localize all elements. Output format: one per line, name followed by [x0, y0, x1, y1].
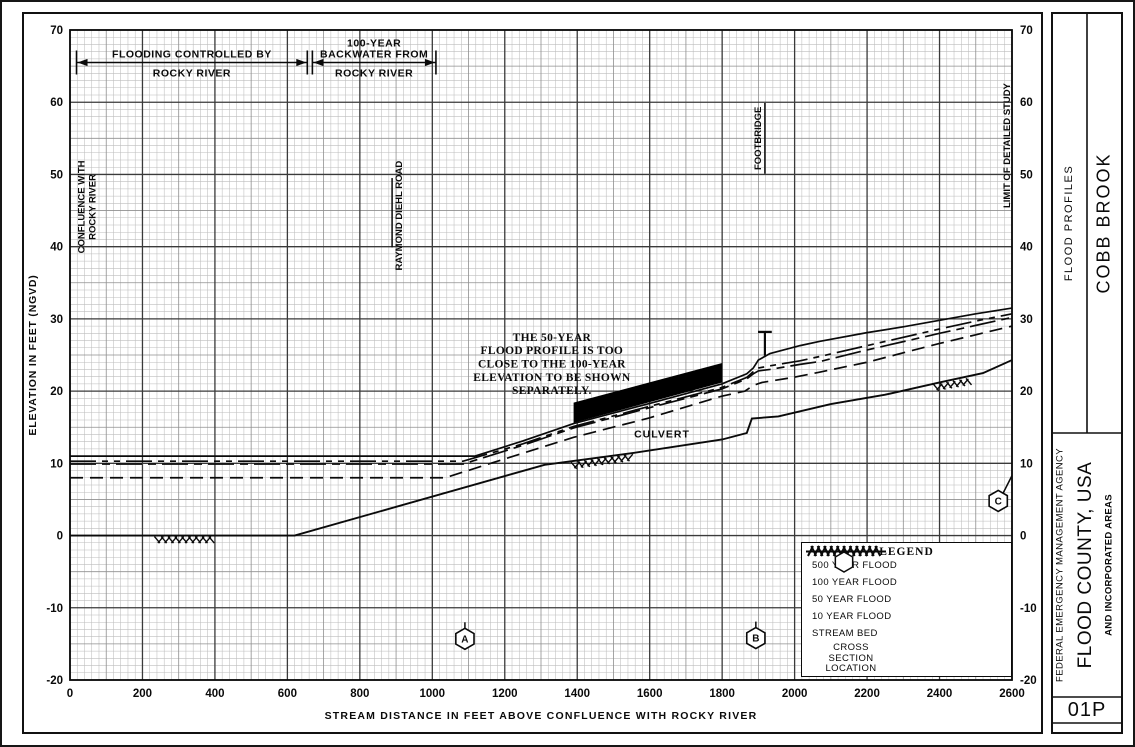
- svg-text:60: 60: [1020, 97, 1033, 109]
- cross-section-C: C: [989, 476, 1012, 512]
- structure-confluence-with-rocky-river: CONFLUENCE WITHROCKY RIVER: [77, 160, 99, 253]
- svg-text:-20: -20: [1020, 675, 1037, 687]
- svg-text:B: B: [752, 634, 759, 645]
- svg-text:10: 10: [50, 458, 63, 470]
- fema-flood-profile-sheet: { "page": { "sidebar_label": "FLOOD PROF…: [0, 0, 1135, 747]
- svg-text:1200: 1200: [492, 688, 518, 700]
- svg-text:2600: 2600: [999, 688, 1025, 700]
- svg-text:-10: -10: [46, 603, 63, 615]
- svg-text:FOOTBRIDGE: FOOTBRIDGE: [753, 107, 764, 170]
- structure-raymond-diehl-road: RAYMOND DIEHL ROAD: [392, 161, 405, 271]
- svg-text:30: 30: [50, 314, 63, 326]
- svg-text:50: 50: [1020, 169, 1033, 181]
- legend-label: 50 YEAR FLOOD: [812, 595, 891, 606]
- svg-text:RAYMOND DIEHL ROAD: RAYMOND DIEHL ROAD: [394, 161, 405, 271]
- cross-section-B: B: [747, 622, 765, 649]
- svg-text:600: 600: [278, 688, 297, 700]
- svg-text:40: 40: [50, 242, 63, 254]
- svg-text:THE 50-YEAR: THE 50-YEAR: [513, 332, 592, 344]
- sidebar-stream-name: COBB BROOK: [1094, 152, 1115, 293]
- panel-number: 01P: [1052, 697, 1122, 723]
- legend-label: STREAM BED: [812, 629, 878, 640]
- svg-text:100-YEAR: 100-YEAR: [347, 38, 401, 50]
- axis-titles: STREAM DISTANCE IN FEET ABOVE CONFLUENCE…: [27, 274, 757, 722]
- svg-text:STREAM DISTANCE IN FEET ABOVE: STREAM DISTANCE IN FEET ABOVE CONFLUENCE…: [325, 710, 758, 722]
- svg-text:BACKWATER FROM: BACKWATER FROM: [320, 49, 428, 61]
- svg-text:2000: 2000: [782, 688, 808, 700]
- legend-row-100-year-flood: 100 YEAR FLOOD: [802, 575, 1011, 592]
- svg-text:ROCKY RIVER: ROCKY RIVER: [335, 68, 413, 80]
- legend-row-stream-bed: STREAM BED: [802, 626, 1011, 643]
- svg-text:20: 20: [1020, 386, 1033, 398]
- svg-text:0: 0: [67, 688, 73, 700]
- sidebar-agency-name: FEDERAL EMERGENCY MANAGEMENT AGENCY: [1055, 448, 1066, 682]
- svg-text:-20: -20: [46, 675, 63, 687]
- sidebar-incorporated-areas: AND INCORPORATED AREAS: [1104, 494, 1115, 636]
- svg-text:ROCKY RIVER: ROCKY RIVER: [88, 174, 99, 240]
- sidebar-flood-profiles-label: FLOOD PROFILES: [1063, 165, 1075, 281]
- legend-row-50-year-flood: 50 YEAR FLOOD: [802, 592, 1011, 609]
- svg-text:200: 200: [133, 688, 152, 700]
- cross-section-symbol-icon: [802, 543, 894, 575]
- svg-text:10: 10: [1020, 458, 1033, 470]
- note-50-year: THE 50-YEARFLOOD PROFILE IS TOOCLOSE TO …: [473, 332, 631, 397]
- cross-section-A: A: [456, 622, 474, 649]
- svg-text:LIMIT OF DETAILED STUDY: LIMIT OF DETAILED STUDY: [1002, 82, 1013, 208]
- svg-text:400: 400: [205, 688, 224, 700]
- svg-text:CULVERT: CULVERT: [634, 428, 690, 440]
- legend: LEGEND 500 YEAR FLOOD100 YEAR FLOOD50 YE…: [801, 542, 1012, 677]
- svg-text:70: 70: [50, 25, 63, 37]
- svg-text:1800: 1800: [709, 688, 735, 700]
- legend-label: 100 YEAR FLOOD: [812, 578, 897, 589]
- svg-text:C: C: [995, 496, 1002, 507]
- svg-text:60: 60: [50, 97, 63, 109]
- svg-text:0: 0: [57, 531, 63, 543]
- svg-text:70: 70: [1020, 25, 1033, 37]
- svg-text:CLOSE TO THE 100-YEAR: CLOSE TO THE 100-YEAR: [478, 358, 626, 370]
- structure-footbridge: FOOTBRIDGE: [753, 103, 765, 174]
- legend-row-10-year-flood: 10 YEAR FLOOD: [802, 609, 1011, 626]
- structure-limit-of-detailed-study: LIMIT OF DETAILED STUDY: [1002, 82, 1013, 208]
- svg-text:FLOODING CONTROLLED BY: FLOODING CONTROLLED BY: [112, 49, 272, 61]
- svg-text:1600: 1600: [637, 688, 663, 700]
- svg-text:1400: 1400: [564, 688, 590, 700]
- svg-text:2400: 2400: [927, 688, 953, 700]
- svg-text:ROCKY RIVER: ROCKY RIVER: [153, 68, 231, 80]
- legend-label: 10 YEAR FLOOD: [812, 612, 891, 623]
- svg-text:A: A: [461, 634, 468, 645]
- culvert-label: CULVERT: [634, 428, 690, 440]
- svg-text:20: 20: [50, 386, 63, 398]
- svg-text:-10: -10: [1020, 603, 1037, 615]
- svg-text:30: 30: [1020, 314, 1033, 326]
- svg-text:CONFLUENCE WITH: CONFLUENCE WITH: [77, 160, 88, 253]
- svg-text:50: 50: [50, 169, 63, 181]
- legend-label: CROSS SECTION LOCATION: [812, 643, 890, 675]
- legend-rows: 500 YEAR FLOOD100 YEAR FLOOD50 YEAR FLOO…: [802, 558, 1011, 675]
- svg-text:40: 40: [1020, 242, 1033, 254]
- svg-text:ELEVATION IN FEET (NGVD): ELEVATION IN FEET (NGVD): [27, 274, 39, 435]
- svg-text:SEPARATELY.: SEPARATELY.: [512, 385, 592, 397]
- footbridge-symbol: [758, 332, 772, 356]
- svg-text:2200: 2200: [854, 688, 880, 700]
- svg-text:0: 0: [1020, 531, 1026, 543]
- sidebar-community-name: FLOOD COUNTY, USA: [1075, 462, 1097, 669]
- svg-text:ELEVATION TO BE SHOWN: ELEVATION TO BE SHOWN: [473, 372, 631, 384]
- legend-row-cross-section-location: CROSS SECTION LOCATION: [802, 643, 1011, 675]
- svg-text:800: 800: [350, 688, 369, 700]
- svg-text:FLOOD PROFILE IS TOO: FLOOD PROFILE IS TOO: [481, 345, 624, 357]
- svg-text:1000: 1000: [420, 688, 446, 700]
